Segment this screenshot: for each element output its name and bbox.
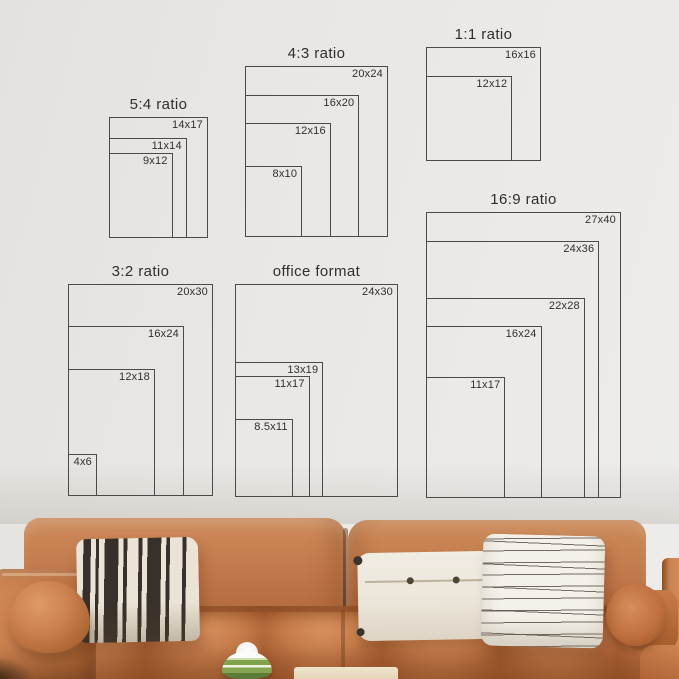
table-edge — [294, 667, 398, 679]
diagram-box: 16x1612x12 — [426, 47, 541, 161]
size-label: 9x12 — [143, 155, 168, 167]
size-label: 14x17 — [172, 119, 203, 131]
pillow-button — [407, 577, 414, 584]
size-diagram-ratio-3-2: 3:2 ratio20x3016x2412x184x6 — [68, 262, 213, 496]
size-label: 8.5x11 — [254, 421, 287, 433]
diagram-title: office format — [235, 262, 398, 284]
diagram-title: 3:2 ratio — [68, 262, 213, 284]
diagram-title: 16:9 ratio — [426, 190, 621, 212]
couch-seat-seam — [341, 610, 345, 674]
diagram-title: 4:3 ratio — [245, 44, 388, 66]
pillow-black-white-striped — [76, 537, 200, 644]
size-rect-11x17: 11x17 — [426, 377, 505, 499]
size-label: 27x40 — [585, 214, 616, 226]
pillow-thin-striped — [481, 533, 606, 648]
pillow-pompom — [353, 556, 362, 565]
size-diagram-ratio-16-9: 16:9 ratio27x4024x3622x2816x2411x17 — [426, 190, 621, 498]
bolster-cushion-right-cap — [606, 584, 666, 646]
size-rect-8.5x11: 8.5x11 — [235, 419, 293, 497]
diagram-box: 14x1711x149x12 — [109, 117, 208, 238]
size-label: 20x24 — [352, 68, 383, 80]
size-diagram-ratio-5-4: 5:4 ratio14x1711x149x12 — [109, 95, 208, 238]
size-label: 22x28 — [549, 300, 580, 312]
diagram-box: 20x3016x2412x184x6 — [68, 284, 213, 496]
size-label: 13x19 — [287, 364, 318, 376]
pillow-pompom — [357, 628, 365, 636]
size-label: 11x17 — [470, 379, 500, 391]
size-label: 12x12 — [476, 78, 507, 90]
size-label: 11x17 — [275, 378, 305, 390]
size-rect-4x6: 4x6 — [68, 454, 97, 496]
pillow-seam — [365, 579, 487, 583]
diagram-box: 20x2416x2012x168x10 — [245, 66, 388, 237]
size-label: 11x14 — [152, 140, 182, 152]
product-photo-scene: 5:4 ratio14x1711x149x124:3 ratio20x2416x… — [0, 0, 679, 679]
size-label: 12x16 — [295, 125, 326, 137]
size-label: 16x24 — [148, 328, 179, 340]
size-label: 16x16 — [505, 49, 536, 61]
size-label: 8x10 — [273, 168, 298, 180]
green-vase-plant — [222, 652, 272, 679]
diagram-box: 24x3013x1911x178.5x11 — [235, 284, 398, 497]
pillow-white-lumbar — [357, 551, 495, 641]
couch-floor-shadow — [0, 656, 36, 679]
size-label: 12x18 — [119, 371, 150, 383]
diagram-box: 27x4024x3622x2816x2411x17 — [426, 212, 621, 498]
size-rect-9x12: 9x12 — [109, 153, 173, 238]
size-label: 16x24 — [506, 328, 537, 340]
diagram-title: 5:4 ratio — [109, 95, 208, 117]
size-label: 4x6 — [74, 456, 92, 468]
size-label: 16x20 — [323, 97, 354, 109]
size-diagram-ratio-1-1: 1:1 ratio16x1612x12 — [426, 25, 541, 161]
diagram-title: 1:1 ratio — [426, 25, 541, 47]
size-rect-12x12: 12x12 — [426, 76, 512, 162]
size-label: 20x30 — [177, 286, 208, 298]
pillow-button — [453, 576, 460, 583]
size-label: 24x36 — [563, 243, 594, 255]
size-diagram-office-format: office format24x3013x1911x178.5x11 — [235, 262, 398, 497]
size-rect-8x10: 8x10 — [245, 166, 302, 237]
size-diagram-ratio-4-3: 4:3 ratio20x2416x2012x168x10 — [245, 44, 388, 237]
size-label: 24x30 — [362, 286, 393, 298]
couch-corner-cushion — [640, 645, 679, 679]
